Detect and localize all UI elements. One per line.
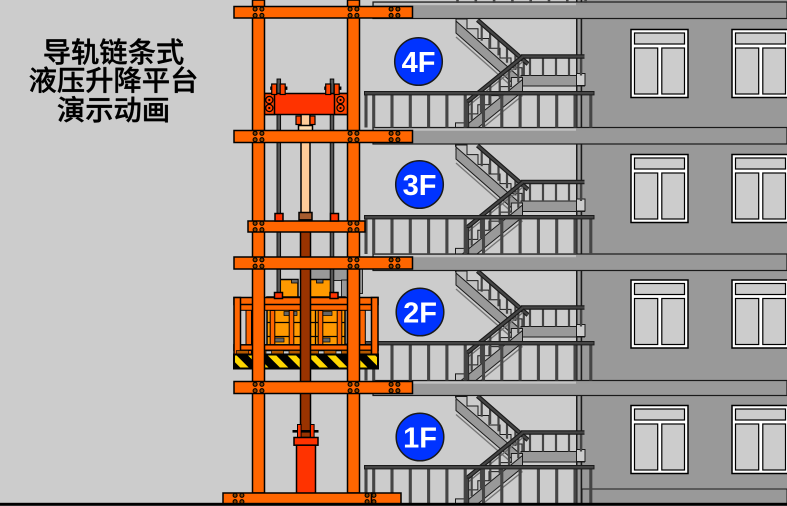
- svg-text:2F: 2F: [403, 298, 437, 330]
- svg-text:4F: 4F: [402, 47, 436, 79]
- svg-text:3F: 3F: [403, 170, 437, 202]
- svg-text:1F: 1F: [403, 423, 437, 455]
